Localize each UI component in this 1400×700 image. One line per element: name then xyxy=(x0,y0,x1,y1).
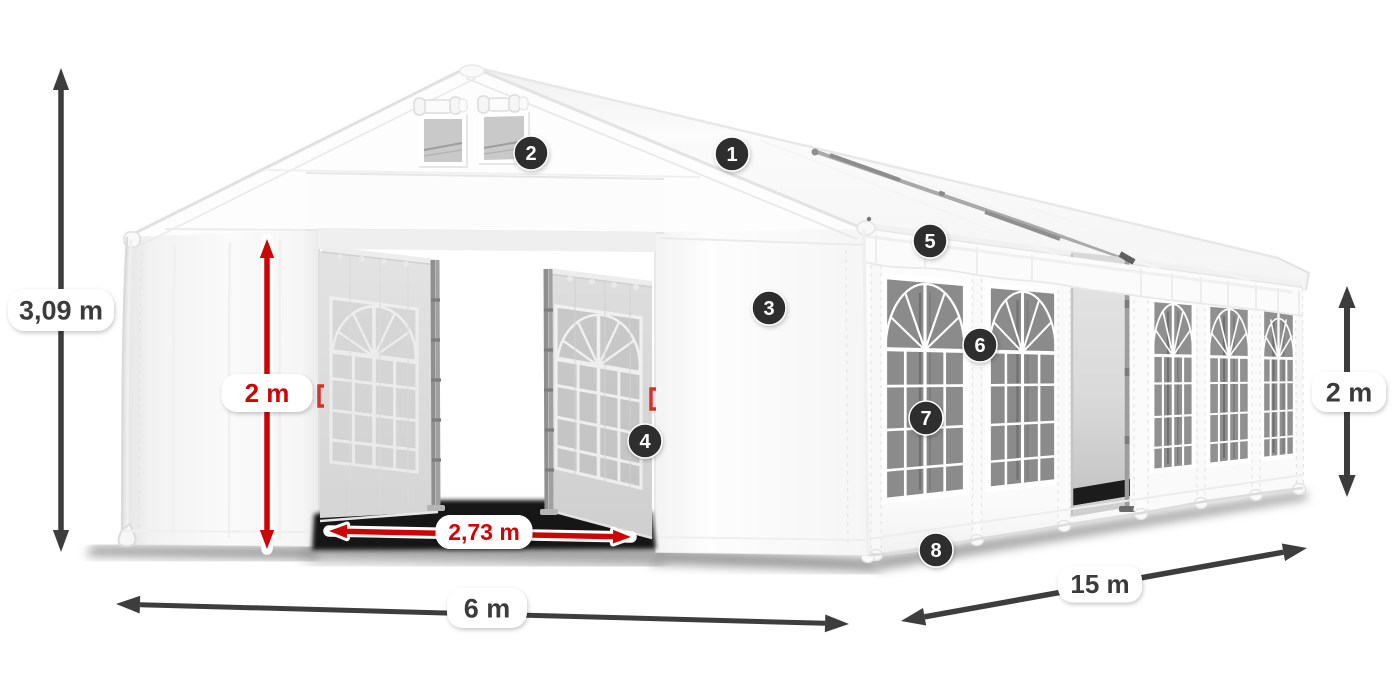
svg-text:2 m: 2 m xyxy=(1326,377,1373,407)
svg-text:6 m: 6 m xyxy=(464,593,511,623)
svg-text:3,09 m: 3,09 m xyxy=(19,295,103,325)
svg-text:2,73 m: 2,73 m xyxy=(448,519,520,545)
svg-text:1: 1 xyxy=(726,144,737,166)
svg-text:2: 2 xyxy=(525,143,536,165)
svg-text:3: 3 xyxy=(763,298,774,320)
svg-text:15 m: 15 m xyxy=(1070,569,1129,599)
svg-text:6: 6 xyxy=(974,335,985,357)
svg-text:8: 8 xyxy=(930,540,941,562)
svg-text:7: 7 xyxy=(920,408,931,430)
svg-text:5: 5 xyxy=(924,231,935,253)
svg-text:2 m: 2 m xyxy=(245,378,290,408)
svg-text:4: 4 xyxy=(639,431,651,453)
